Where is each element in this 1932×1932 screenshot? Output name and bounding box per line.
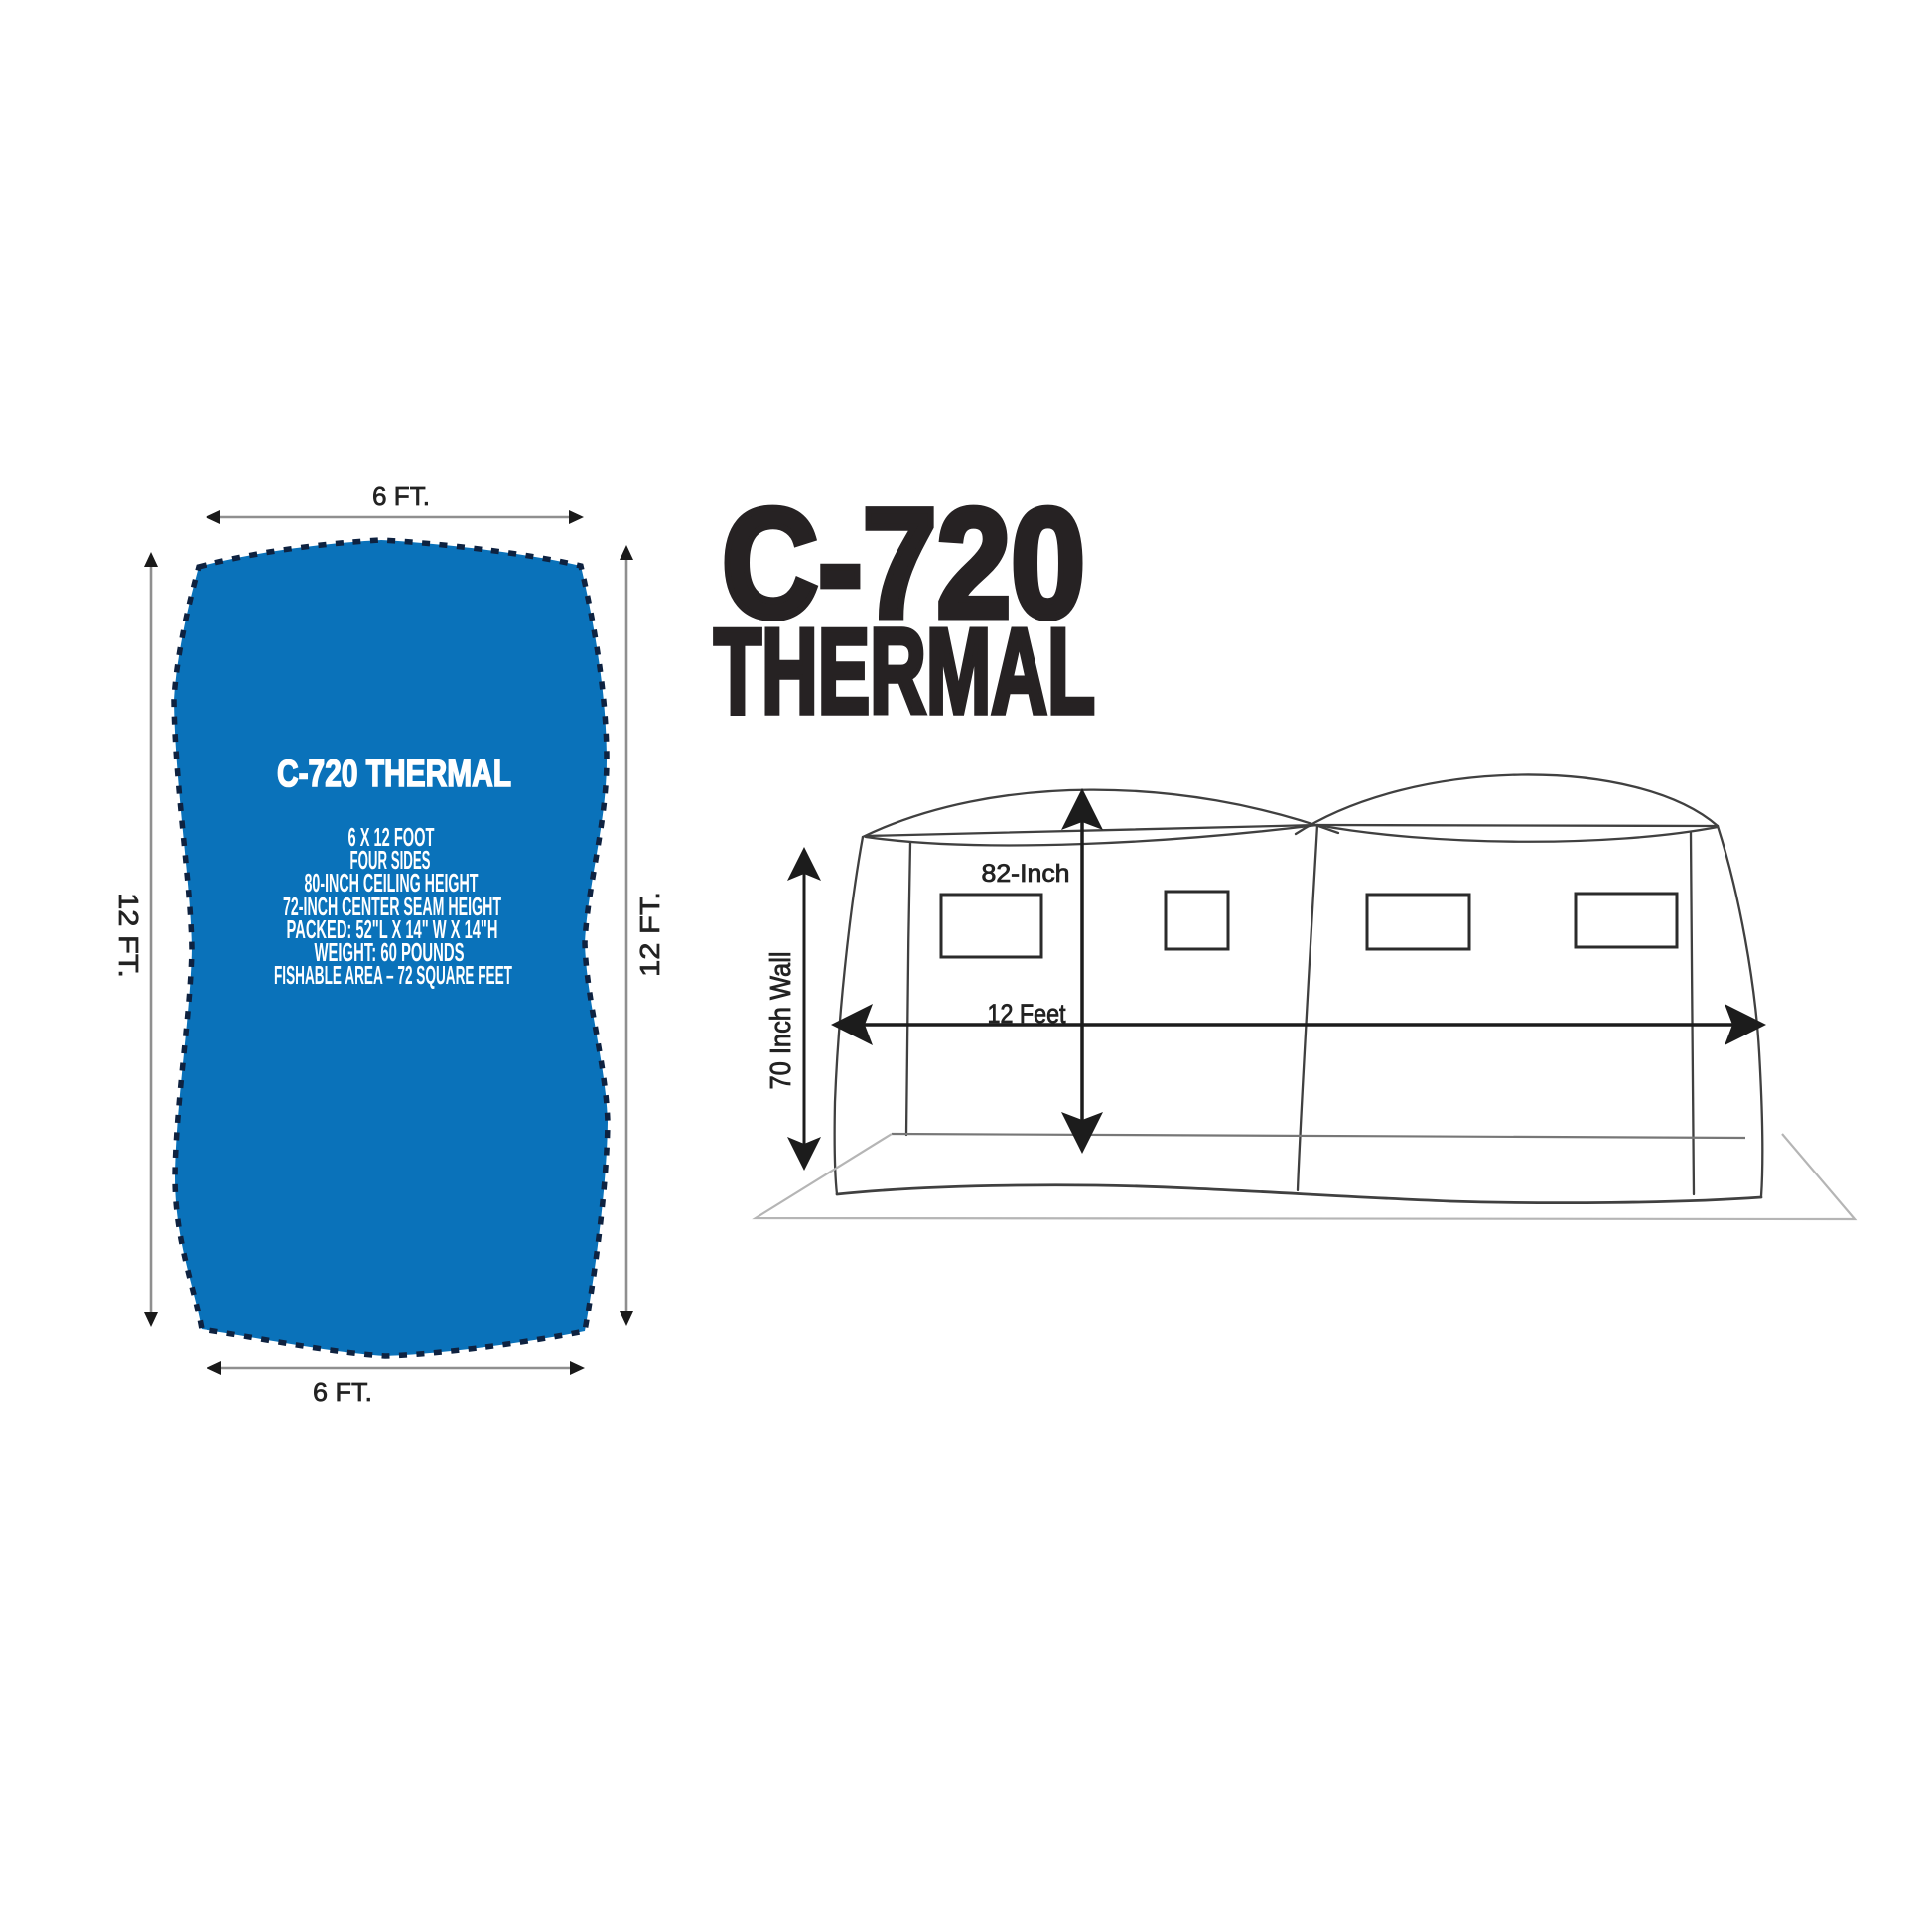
svg-text:12 FT.: 12 FT. bbox=[113, 893, 144, 978]
svg-text:C-720 THERMAL: C-720 THERMAL bbox=[277, 754, 511, 795]
svg-text:6 FT.: 6 FT. bbox=[372, 482, 430, 511]
svg-text:12 FT.: 12 FT. bbox=[634, 892, 665, 977]
svg-text:82-Inch: 82-Inch bbox=[982, 860, 1070, 888]
svg-text:THERMAL: THERMAL bbox=[714, 604, 1095, 739]
svg-text:70 Inch Wall: 70 Inch Wall bbox=[765, 952, 797, 1090]
svg-text:FISHABLE AREA – 72 SQUARE FEET: FISHABLE AREA – 72 SQUARE FEET bbox=[274, 960, 512, 990]
svg-text:6 FT.: 6 FT. bbox=[313, 1377, 372, 1407]
svg-text:12 Feet: 12 Feet bbox=[988, 999, 1066, 1029]
